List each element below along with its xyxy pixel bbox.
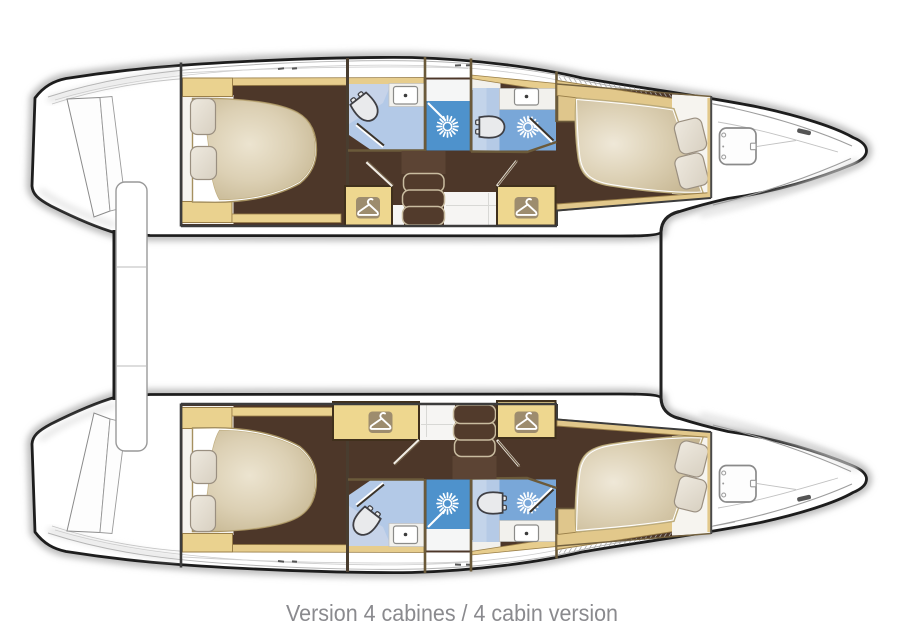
svg-text:Version 4 cabines / 4 cabin ve: Version 4 cabines / 4 cabin version [286,600,618,626]
